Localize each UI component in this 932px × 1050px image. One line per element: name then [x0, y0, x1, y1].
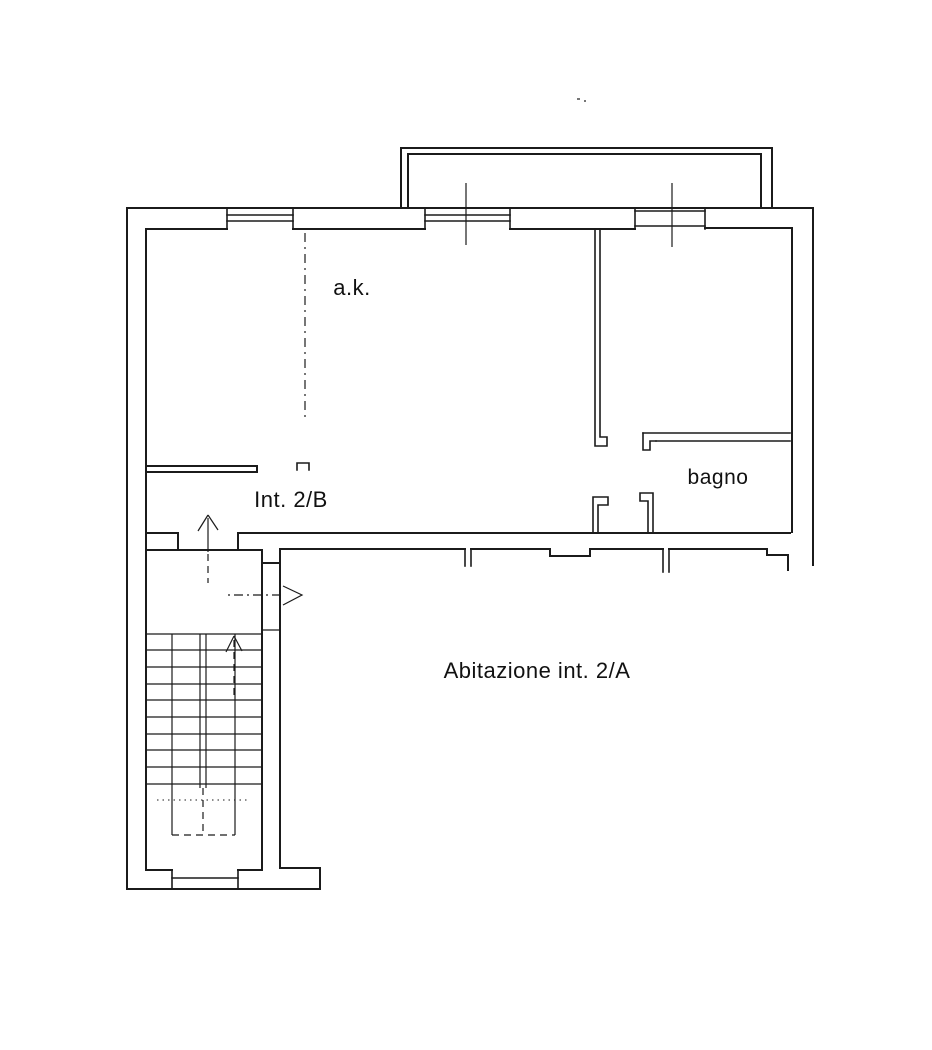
hall-door-jambs	[593, 493, 653, 533]
partition-wall-left	[297, 233, 309, 470]
floor-plan-scan: a.k. Int. 2/B bagno Abitazione int. 2/A	[0, 0, 932, 1050]
bottom-wall	[146, 533, 790, 572]
wall-line	[127, 208, 813, 565]
balcony-inner-edge	[408, 154, 761, 208]
room-labels: a.k. Int. 2/B bagno Abitazione int. 2/A	[254, 275, 748, 683]
balcony	[401, 148, 772, 208]
wall-line	[669, 549, 788, 570]
window-top-left	[227, 208, 293, 229]
room-label-bagno: bagno	[688, 466, 749, 489]
door-jamb-stub	[643, 433, 656, 450]
apartment-label-int-2a: Abitazione int. 2/A	[444, 658, 631, 683]
arrow-head	[283, 586, 302, 605]
scan-specks	[577, 99, 586, 101]
entry-right-arrow	[228, 586, 302, 605]
partition-jamb-stub	[297, 463, 309, 470]
wall-outline	[595, 229, 607, 446]
balcony-door-1	[425, 183, 510, 245]
left-room-bottom-wall	[146, 466, 257, 472]
bagno-walls	[643, 433, 790, 450]
wall-line	[471, 549, 663, 556]
wall-line	[146, 549, 465, 563]
floor-plan-drawing: a.k. Int. 2/B bagno Abitazione int. 2/A	[0, 0, 932, 1050]
interior-wall-center	[595, 229, 607, 446]
unit-label-int-2b: Int. 2/B	[254, 487, 328, 512]
stairwell	[146, 550, 280, 888]
arrow-head	[198, 515, 208, 531]
door-jamb	[593, 497, 608, 533]
balcony-outer-edge	[401, 148, 772, 208]
balcony-door-2	[635, 183, 705, 247]
room-label-ak: a.k.	[333, 275, 370, 300]
entry-door-jamb	[146, 533, 178, 550]
arrow-head	[208, 515, 218, 530]
door-jamb	[640, 493, 653, 533]
wall-line	[146, 466, 257, 472]
stairs-up-arrow	[226, 636, 242, 700]
